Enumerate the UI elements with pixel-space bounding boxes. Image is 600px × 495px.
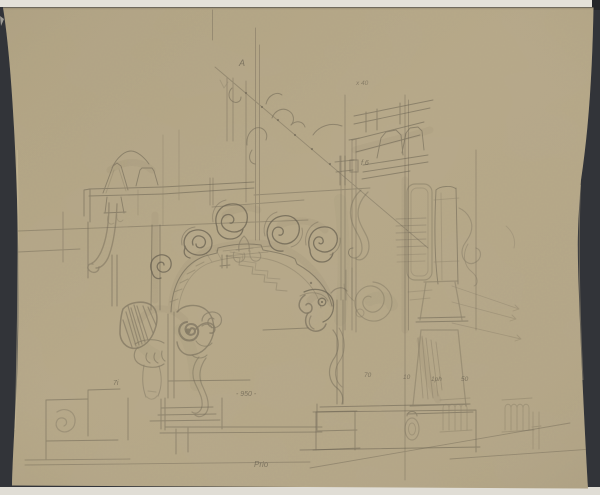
svg-text:10: 10 (403, 374, 411, 381)
svg-text:50: 50 (461, 376, 469, 383)
svg-text:70: 70 (364, 372, 372, 379)
svg-text:Prio: Prio (254, 460, 269, 469)
svg-text:7i: 7i (113, 380, 119, 387)
svg-text:f 6: f 6 (361, 160, 369, 167)
svg-text:1ph: 1ph (431, 376, 442, 383)
svg-text:A: A (238, 58, 245, 68)
svg-text:x 40: x 40 (355, 80, 369, 87)
svg-text:- 950 -: - 950 - (236, 391, 257, 398)
